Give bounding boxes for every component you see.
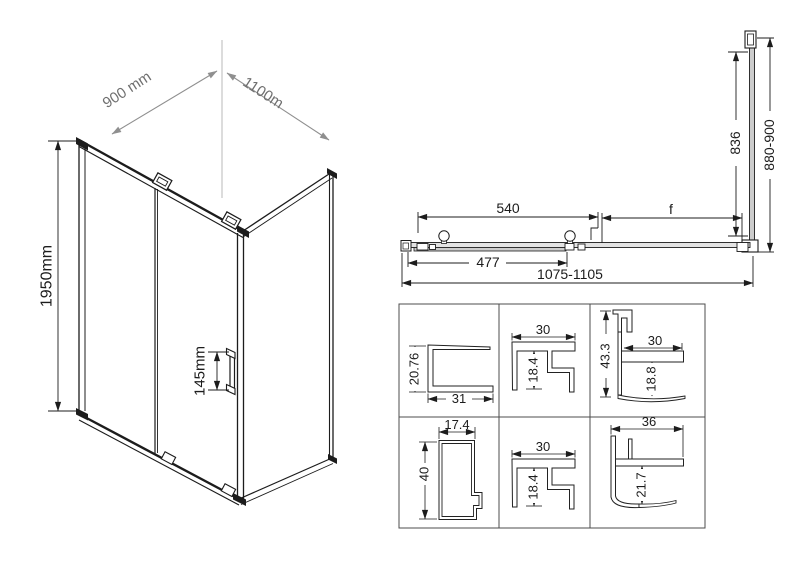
plan-side-range-label: 880-900: [761, 119, 777, 171]
plan-total-width-label: 1075-1105: [537, 266, 603, 282]
profile-magnet: 17.4 40: [417, 417, 483, 520]
profile-glass-channel-top: 30 18.4: [512, 322, 575, 392]
plan-view: 540 f 477 1075-1105 836 880-900: [393, 25, 785, 297]
profile-glass-channel-top-height-label: 18.4: [526, 357, 541, 382]
iso-handle-dim-label: 145mm: [192, 346, 209, 396]
technical-drawing-page: 900 mm 1100m: [0, 0, 800, 563]
profile-glass-channel-bottom-height-label: 18.4: [526, 474, 541, 499]
profile-magnet-width-label: 17.4: [444, 417, 469, 432]
iso-height-dim-label: 1950mm: [39, 245, 56, 307]
profile-bottom-rail-height-label: 21.7: [634, 472, 649, 497]
profile-sections-grid: 20.76 31 30 18.4 43.3 3: [396, 301, 710, 533]
profile-glass-channel-bottom: 30 18.4: [512, 439, 575, 509]
profile-glass-channel-top-width-label: 30: [536, 322, 550, 337]
iso-top-dimensions: 900 mm 1100m: [100, 40, 329, 198]
iso-enclosure-frame: [76, 137, 337, 506]
profile-bottom-rail-width-label: 36: [642, 414, 656, 429]
profile-glass-channel-bottom-width-label: 30: [536, 439, 550, 454]
profile-corner: 43.3 30 18.8: [598, 310, 686, 402]
plan-parts: [401, 31, 758, 252]
iso-handle-dimension: [208, 352, 229, 390]
plan-side-gap-label: f: [669, 201, 673, 217]
iso-width-dim-label: 900 mm: [100, 68, 155, 112]
plan-side-inner-label: 836: [727, 131, 743, 155]
iso-depth-dim-label: 1100m: [240, 74, 287, 113]
plan-door-span-label: 540: [496, 200, 520, 216]
plan-glass-width-label: 477: [476, 254, 500, 270]
profile-magnet-height-label: 40: [417, 467, 432, 481]
isometric-view: 900 mm 1100m: [25, 30, 360, 530]
profile-wall-c-height-label: 20.76: [407, 353, 422, 386]
profile-corner-height-label: 43.3: [598, 343, 613, 368]
profile-wall-c-width-label: 31: [452, 391, 466, 406]
profile-corner-width-label: 30: [648, 333, 662, 348]
profile-wall-c: 20.76 31: [407, 345, 494, 406]
profile-bottom-rail: 36 21.7: [611, 414, 684, 508]
profile-corner-inner-height-label: 18.8: [644, 366, 659, 391]
